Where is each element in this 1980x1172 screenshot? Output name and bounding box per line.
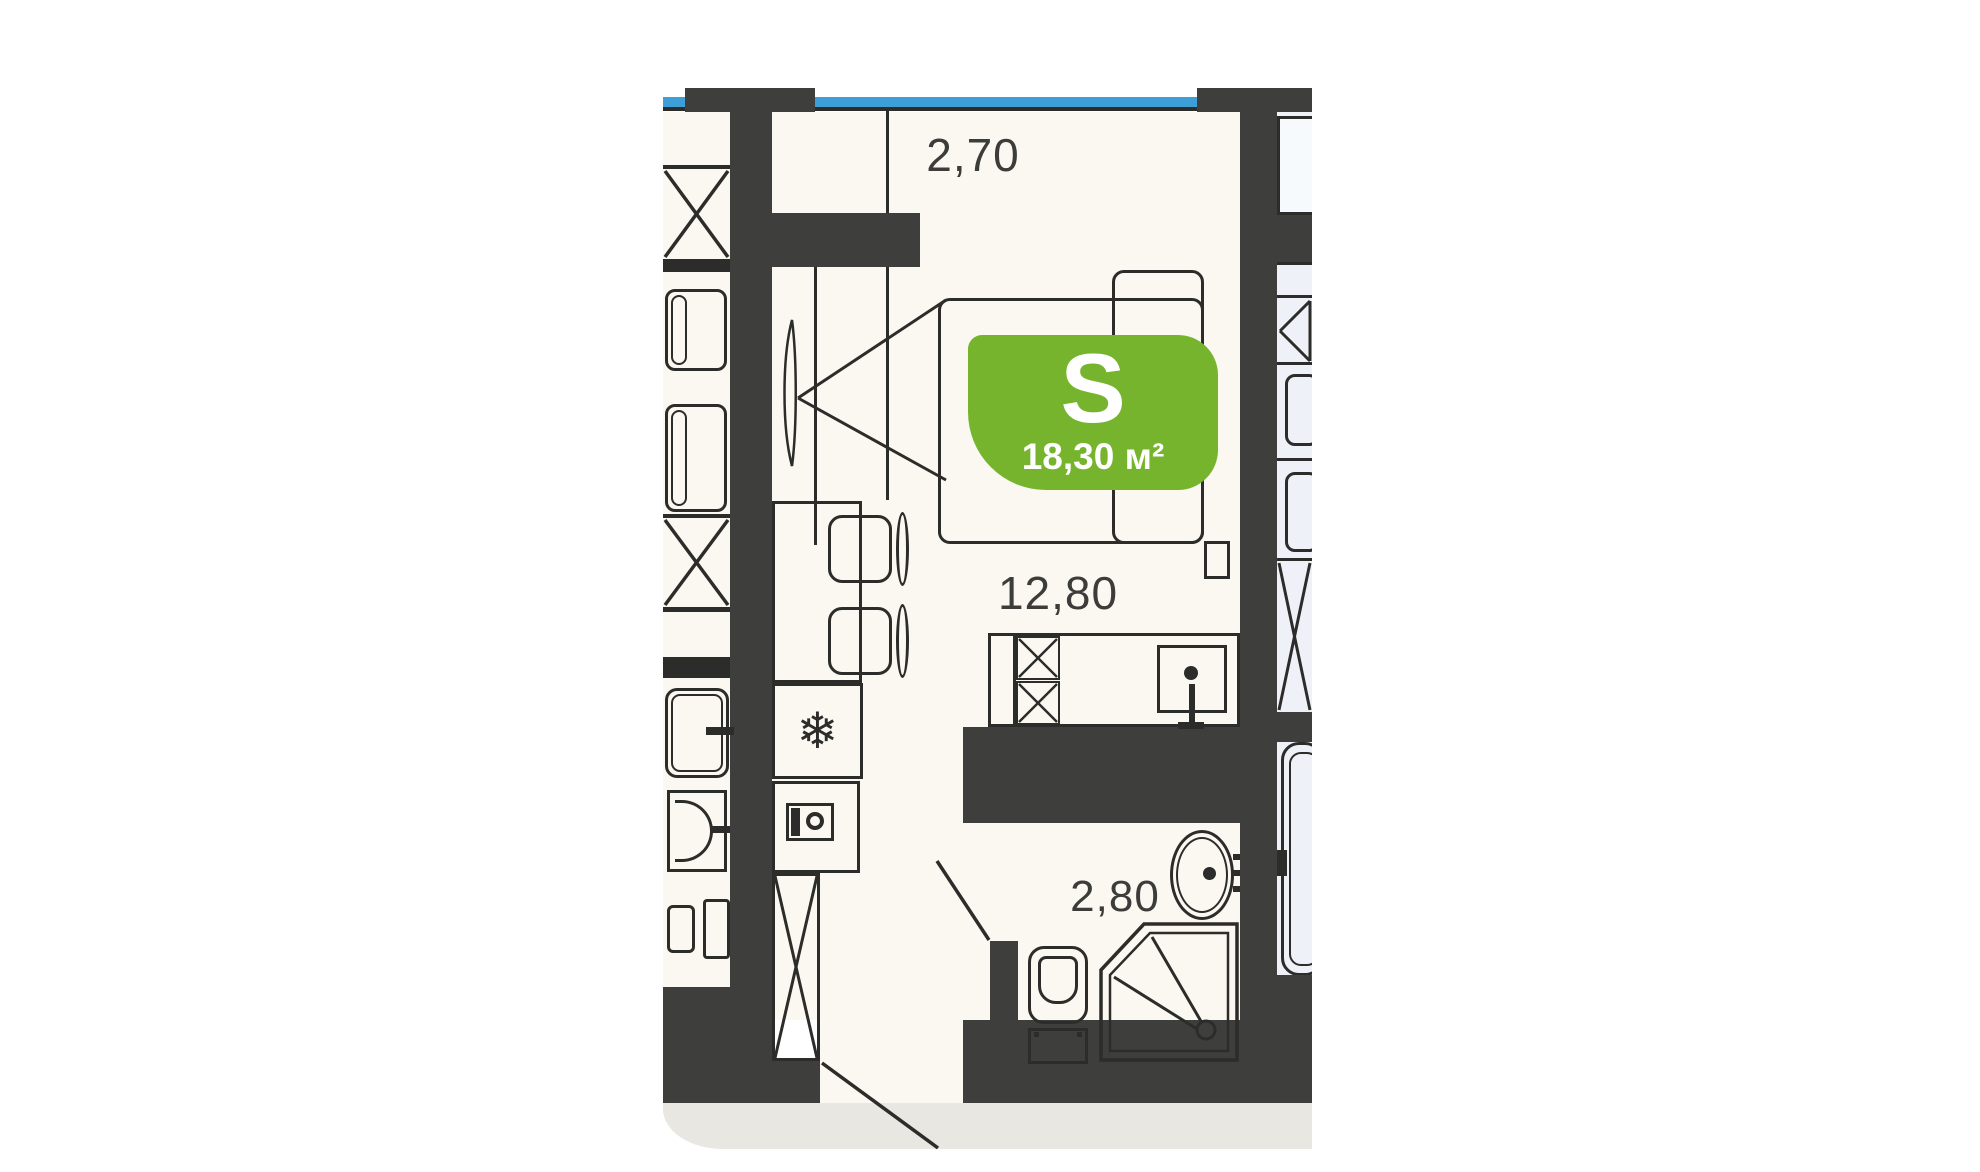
nightstand	[1204, 541, 1230, 579]
neighbor-bath-tap-icon	[706, 727, 734, 735]
chair-back	[896, 604, 909, 678]
washbasin-tap-icon	[1233, 854, 1240, 860]
left-strip-band	[663, 259, 730, 272]
neighbor-shelf-box	[1277, 262, 1312, 298]
freezer-icon: ❄	[775, 686, 860, 776]
neighbor-toilet-cistern	[703, 899, 730, 959]
washing-machine-panel	[791, 808, 800, 836]
bathroom-washbasin-inner	[1176, 837, 1228, 913]
closet-door-swing-icon	[794, 292, 954, 487]
neighbor-furniture-partial	[1285, 374, 1312, 446]
neighbor-armchair-back	[671, 410, 687, 506]
stove-burner-icon	[1016, 681, 1060, 725]
neighbor-toilet-bowl	[667, 905, 695, 953]
wall-top-left-pier	[685, 88, 815, 112]
neighbor-furniture-partial	[1285, 472, 1312, 552]
left-strip-line	[663, 607, 730, 612]
neighbor-shaft-icon	[1277, 298, 1312, 364]
kitchen-tap-icon	[1178, 722, 1204, 729]
neighbor-armchair-back	[671, 295, 687, 365]
kitchen-sink-drain-icon	[1184, 666, 1198, 680]
washbasin-tap-icon	[1233, 886, 1240, 892]
neighbor-bath-tap-icon	[1277, 850, 1287, 876]
neighbor-basin-tap-icon	[710, 826, 730, 833]
neighbor-wall-block	[1277, 215, 1312, 262]
kitchen-tap-icon	[1189, 684, 1195, 722]
neighbor-right-strip	[1277, 112, 1312, 1020]
neighbor-wall-block	[1277, 712, 1312, 742]
stove-burner-icon	[1016, 636, 1060, 680]
wall-top-right-pier	[1197, 88, 1312, 112]
toilet-bowl-inner	[1038, 956, 1078, 1004]
chair-seat	[828, 607, 892, 675]
wall-entry-stub	[772, 213, 920, 267]
corridor-floor	[663, 1103, 1312, 1149]
bathroom-door-swing-icon	[932, 855, 994, 947]
floor-plan: ❄	[0, 0, 1980, 1172]
vent-shaft-icon	[663, 169, 730, 259]
dimension-label-room: 12,80	[972, 566, 1144, 618]
vent-shaft-icon	[663, 518, 730, 607]
wall-under-shaft	[772, 1060, 820, 1103]
tall-vent-shaft	[772, 873, 820, 1061]
washing-machine-door-icon	[806, 812, 824, 830]
area-badge-letter: S	[1060, 347, 1125, 430]
closet-partition-line	[886, 110, 889, 213]
chair-seat	[828, 515, 892, 583]
wall-bathroom-top	[963, 727, 1240, 823]
wall-bathroom-door-stub	[990, 941, 1018, 1063]
neighbor-shaft-icon	[1277, 561, 1312, 712]
dimension-label-top: 2,70	[900, 128, 1046, 178]
wall-bottom-left-block	[663, 987, 772, 1103]
neighbor-line	[1277, 362, 1312, 365]
washbasin-drain-icon	[1203, 867, 1216, 880]
chair-back	[896, 512, 909, 586]
washbasin-tap-icon	[1233, 870, 1240, 876]
fridge: ❄	[772, 683, 863, 779]
neighbor-wall-block	[1277, 975, 1312, 1020]
left-strip-wall-band	[663, 657, 730, 678]
neighbor-window-box	[1277, 116, 1312, 215]
area-badge-value: 18,30 м²	[1022, 436, 1165, 478]
area-badge: S 18,30 м²	[968, 335, 1218, 490]
neighbor-bathtub-inner	[1289, 752, 1312, 966]
neighbor-line	[1277, 458, 1312, 461]
wall-left-column	[730, 110, 772, 987]
shower-cabin	[1098, 921, 1240, 1063]
dimension-label-bathroom: 2,80	[1053, 872, 1177, 916]
wall-right-column	[1240, 110, 1277, 1103]
toilet-button-icon	[1077, 1032, 1082, 1037]
toilet-button-icon	[1034, 1032, 1039, 1037]
entrance-door-swing-icon	[816, 1056, 944, 1154]
